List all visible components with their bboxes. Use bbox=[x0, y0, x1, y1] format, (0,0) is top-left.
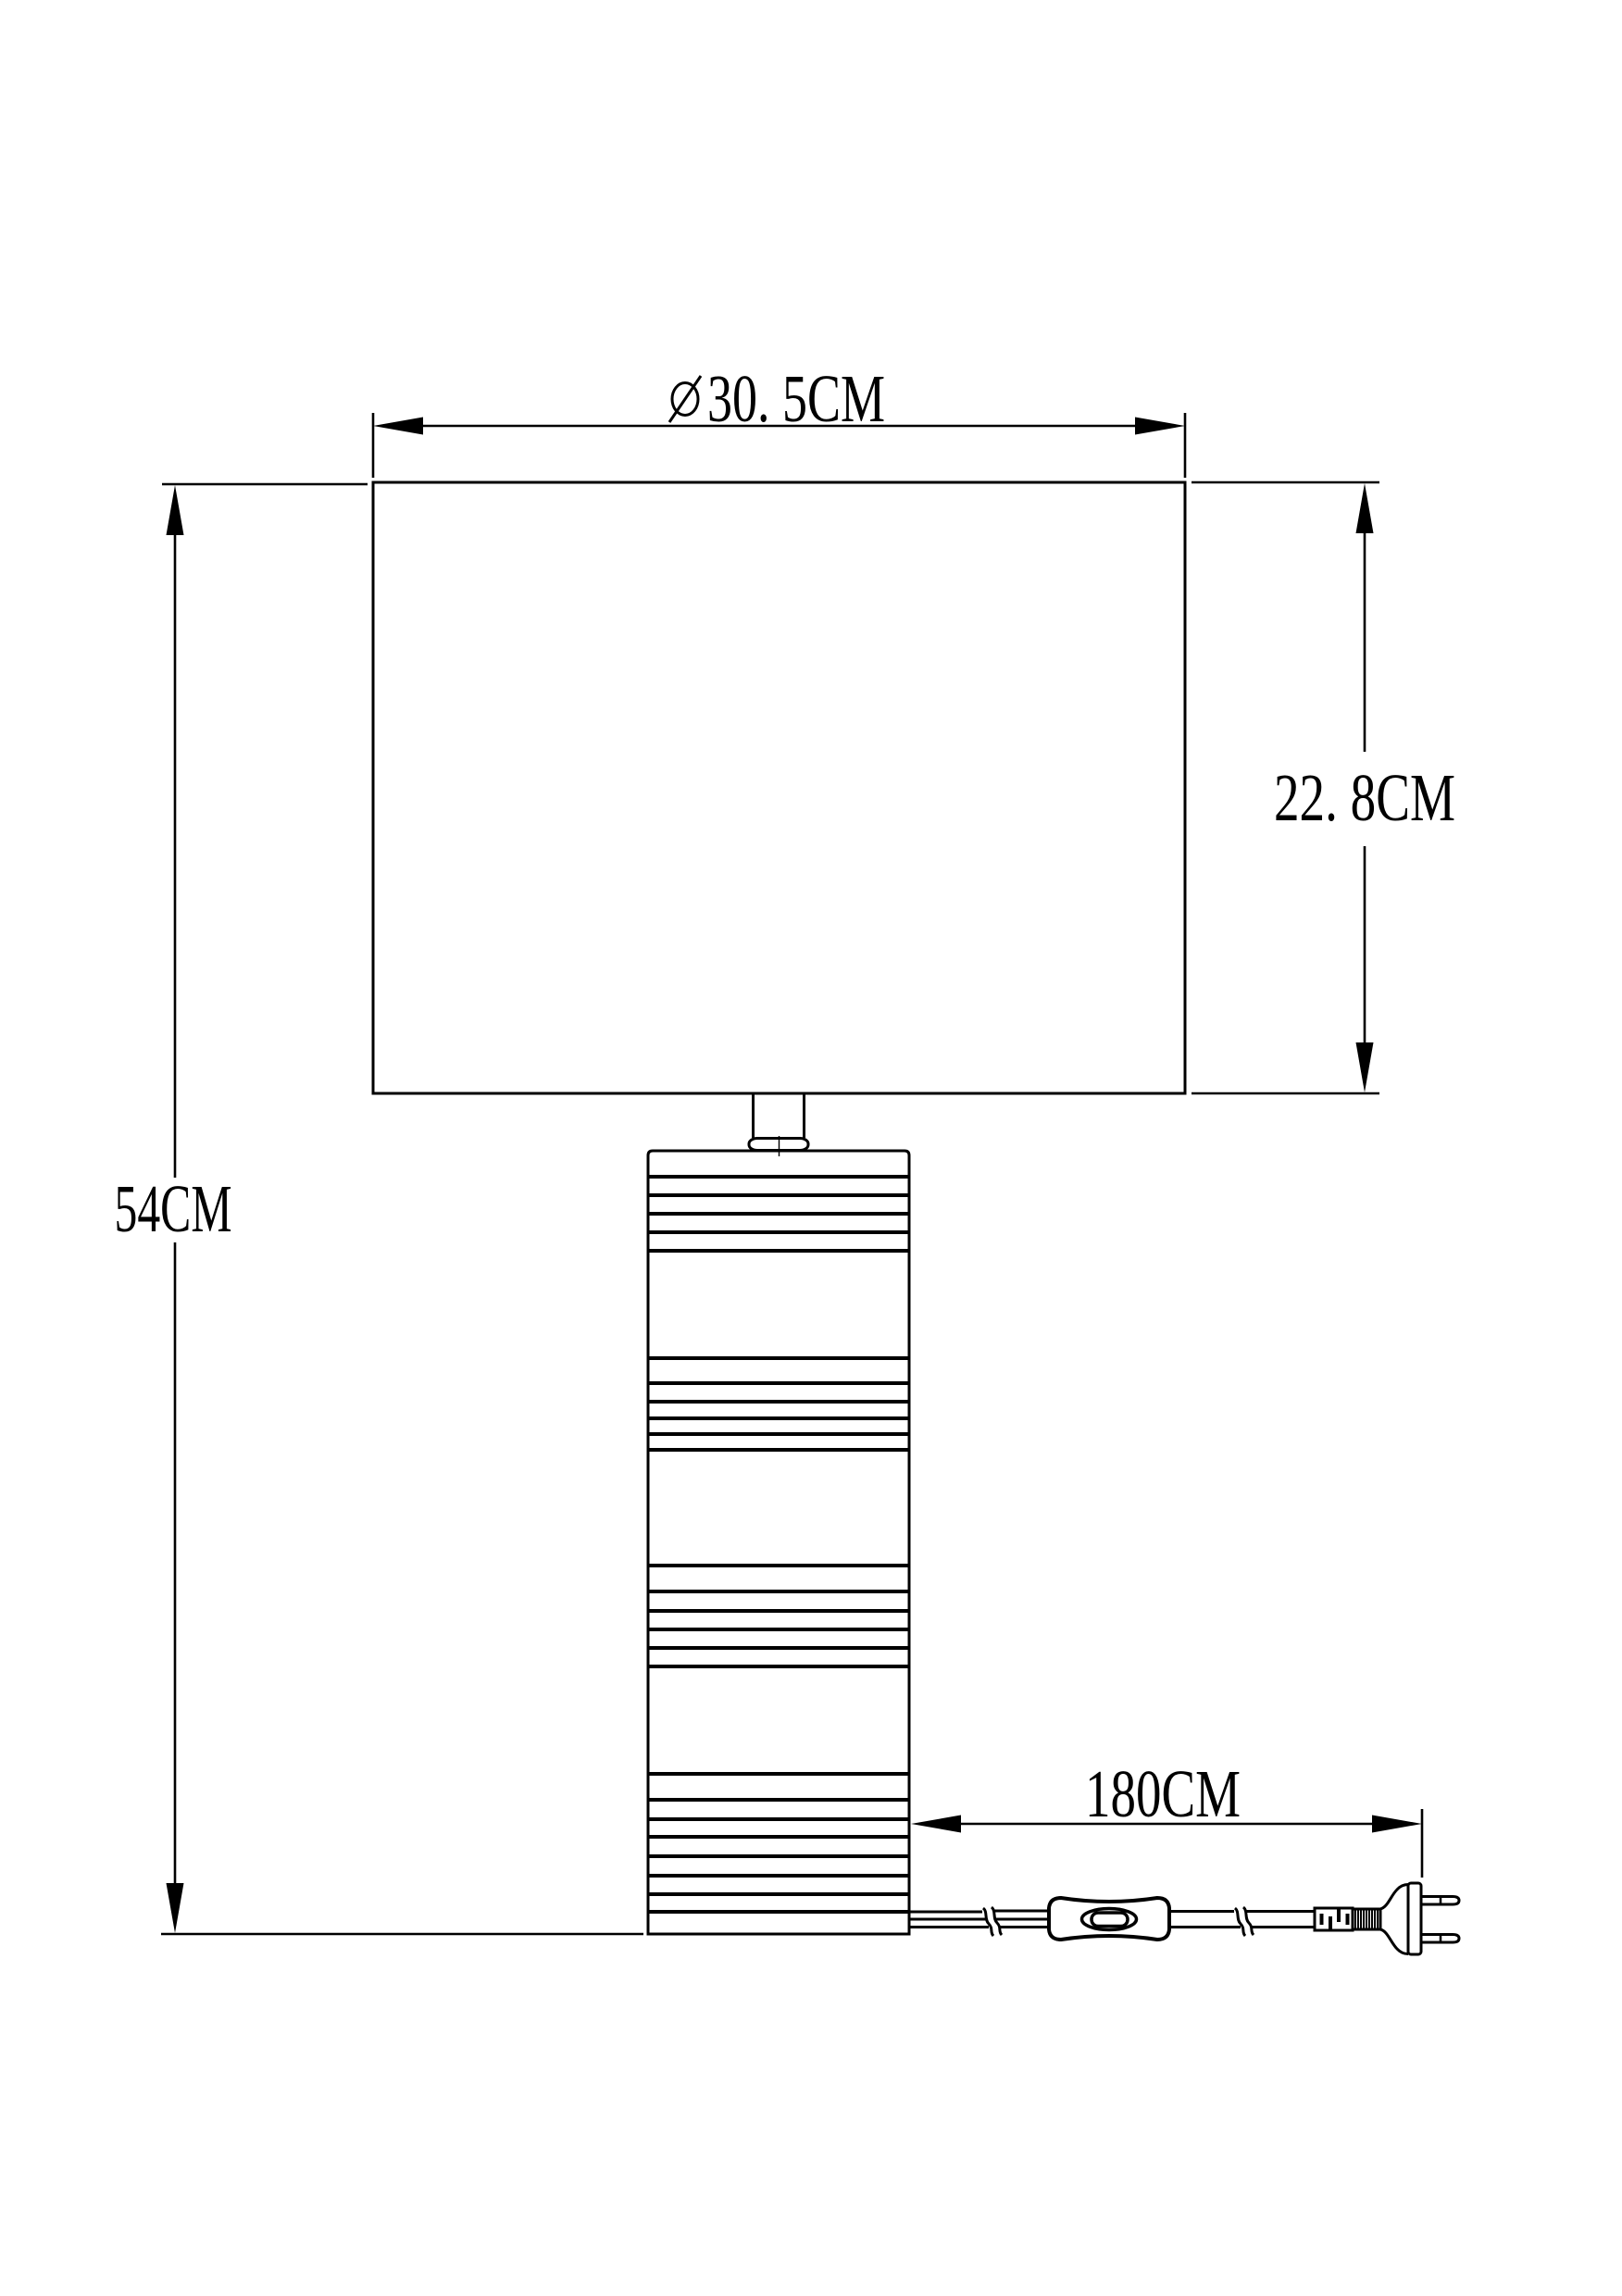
svg-text:180CM: 180CM bbox=[1085, 1756, 1241, 1831]
svg-text:30. 5CM: 30. 5CM bbox=[707, 361, 885, 436]
svg-text:22. 8CM: 22. 8CM bbox=[1274, 760, 1455, 835]
svg-text:54CM: 54CM bbox=[115, 1171, 232, 1246]
